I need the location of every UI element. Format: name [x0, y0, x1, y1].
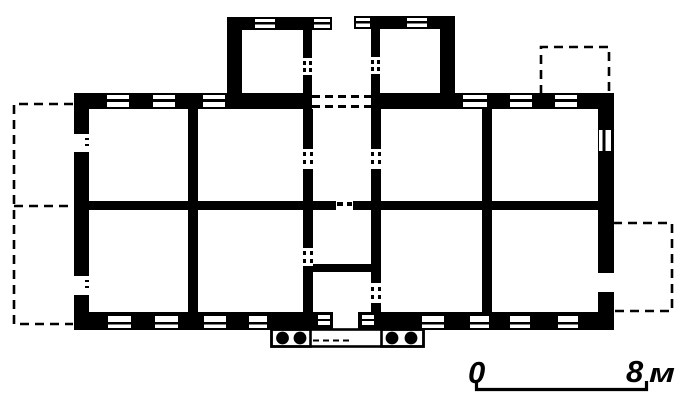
svg-text:м: м: [649, 358, 675, 388]
svg-text:8: 8: [626, 354, 644, 389]
svg-text:0: 0: [468, 355, 485, 390]
